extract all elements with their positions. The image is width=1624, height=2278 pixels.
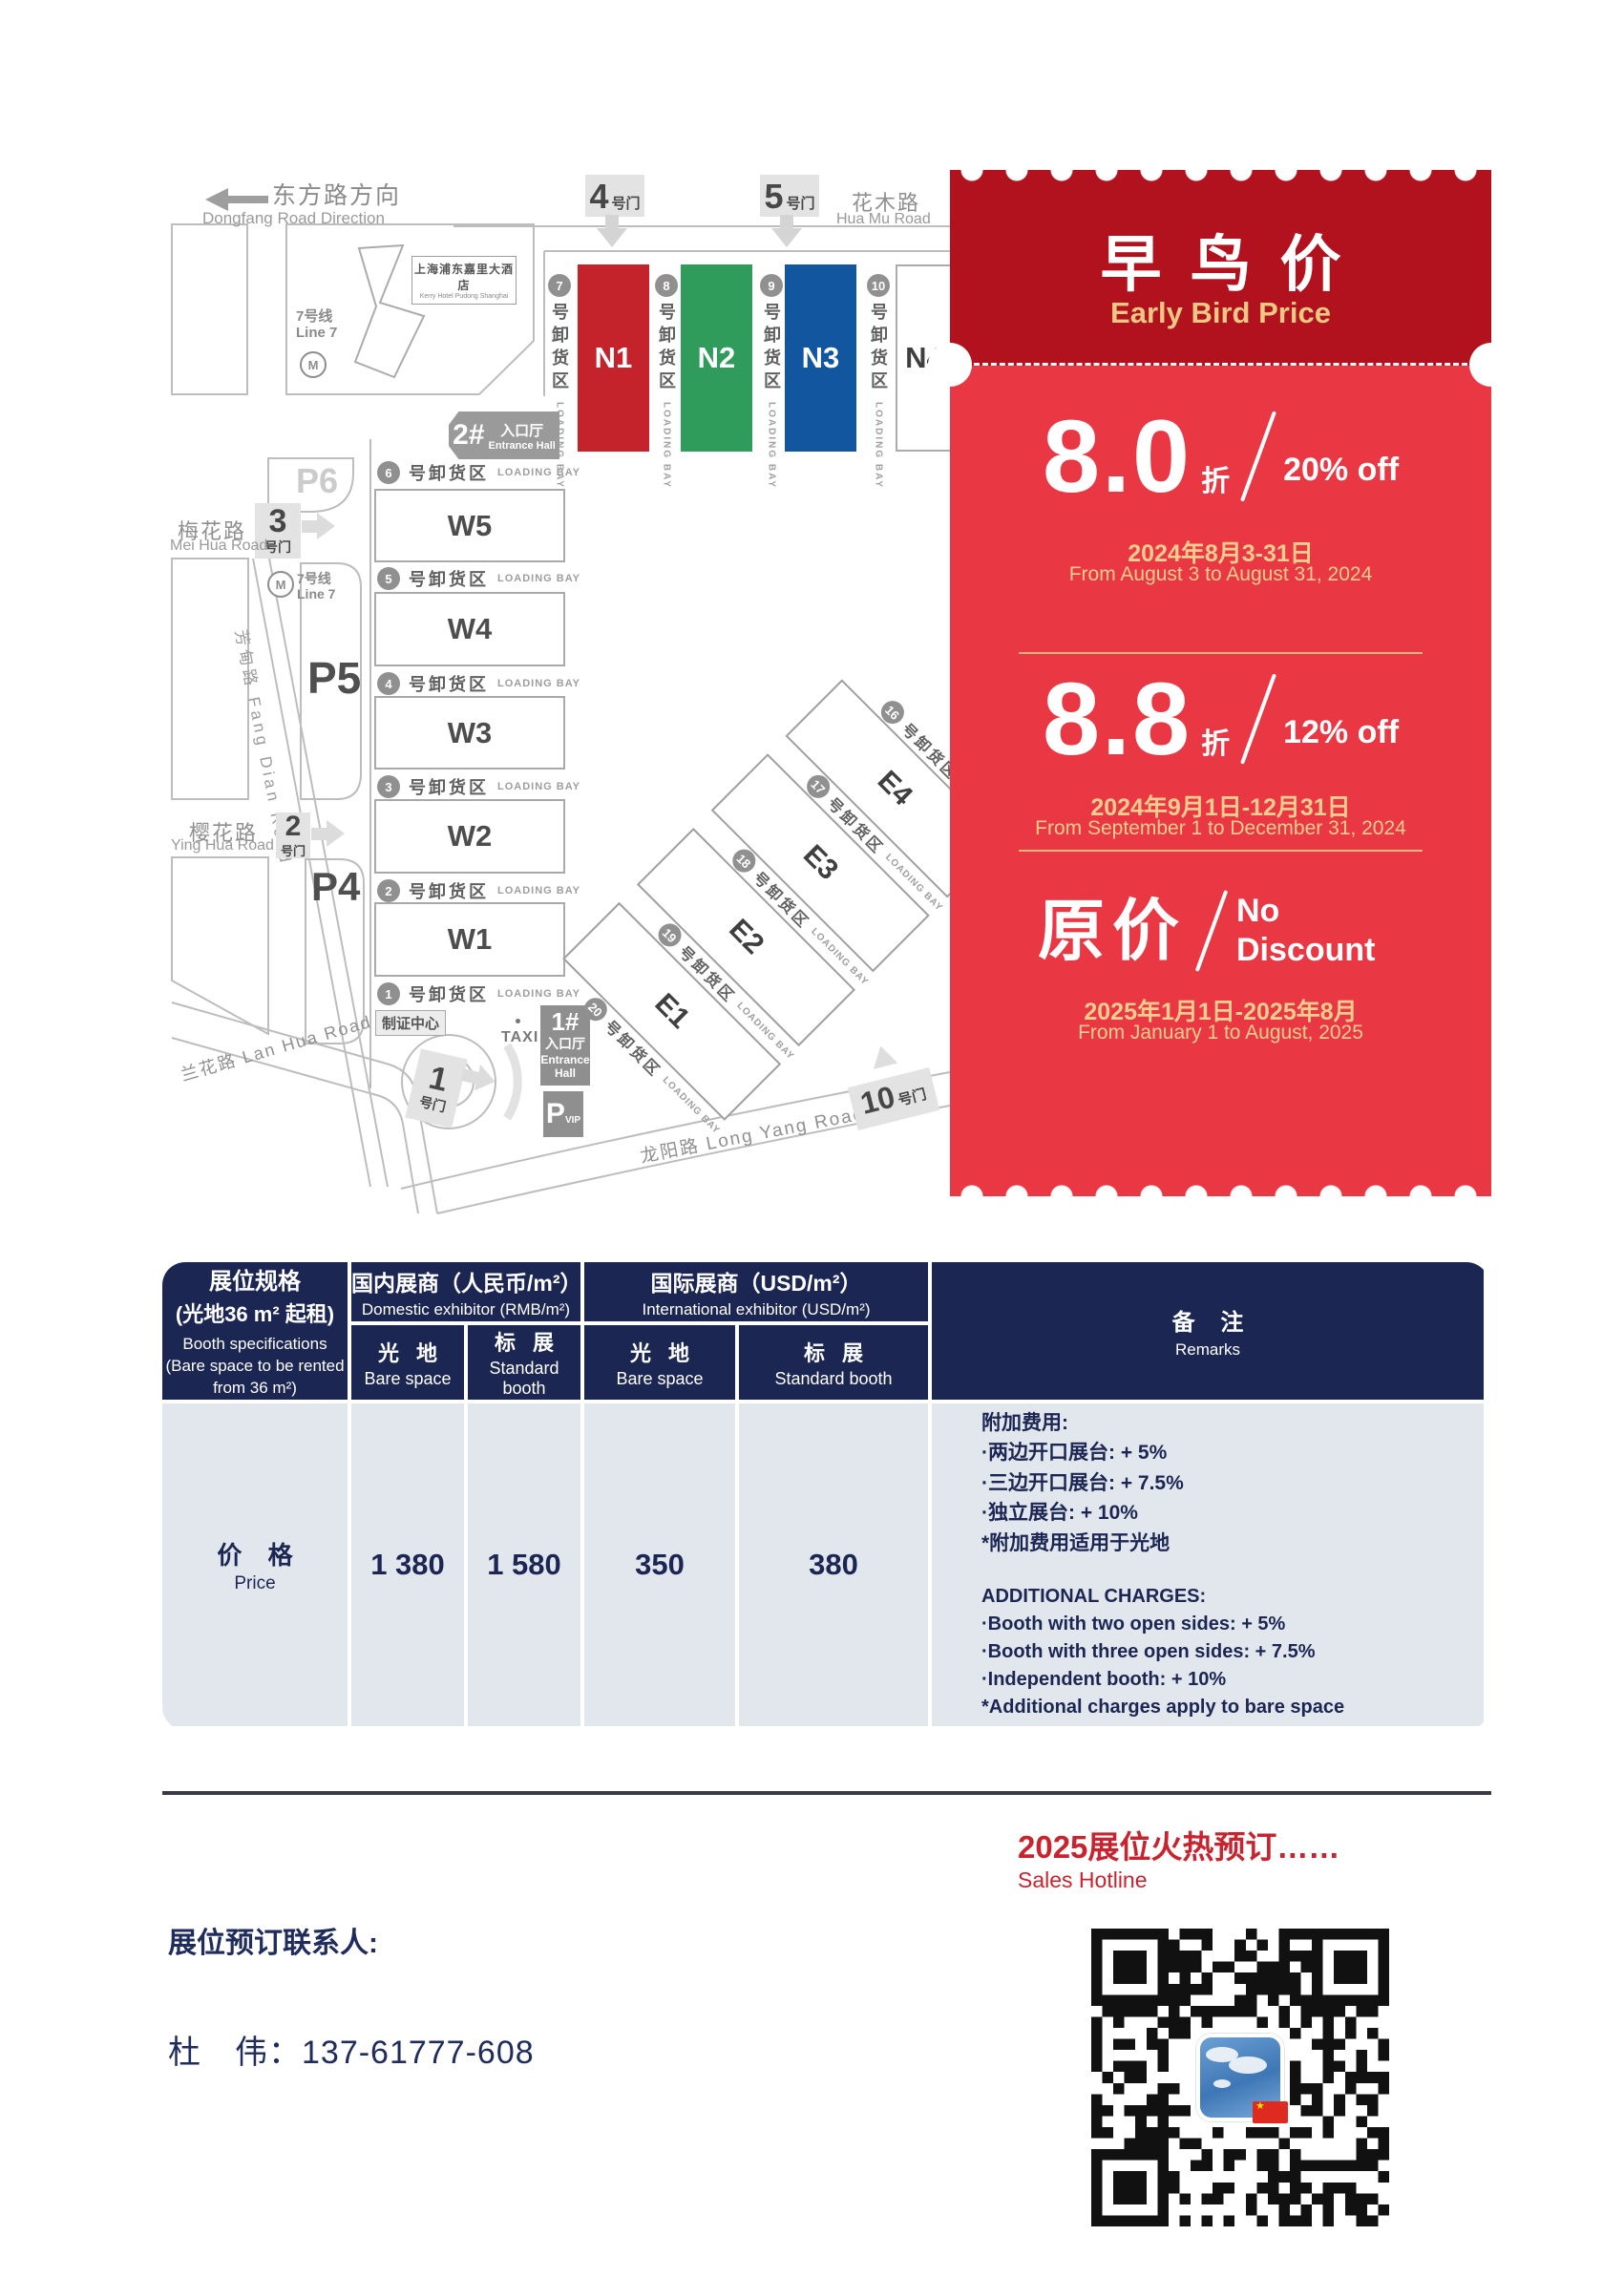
coupon-notch-right	[1469, 343, 1513, 387]
loading-bay-2: 2号卸货区LOADING BAY	[377, 878, 580, 903]
gate-5-arrow-icon	[771, 215, 802, 247]
footer-divider	[162, 1791, 1491, 1795]
metro-line7-label-1: 7号线 Line 7	[296, 308, 337, 342]
price-domestic-bare: 1 380	[351, 1403, 464, 1726]
china-flag-icon: ★	[1253, 2101, 1288, 2123]
parking-p6: P6	[296, 461, 338, 501]
hall-n3: N3	[785, 264, 856, 452]
price-intl-bare: 350	[584, 1403, 735, 1726]
coupon-divider-1	[1019, 652, 1423, 654]
hall-w3: W3	[374, 696, 565, 770]
hall-n1: N1	[578, 264, 649, 452]
slash-icon	[1240, 411, 1276, 501]
price-table: 展位规格 (光地36 m² 起租) Booth specifications (…	[162, 1262, 1489, 1730]
contact-phone: 杜 伟：137-61777-608	[168, 2026, 535, 2073]
sales-hotline-cn: 2025展位火热预订……	[1018, 1822, 1339, 1867]
col-header-domestic: 国内展商（人民币/m²） Domestic exhibitor (RMB/m²)	[351, 1262, 580, 1321]
loading-bay-1: 1号卸货区LOADING BAY	[377, 981, 580, 1006]
gate-4: 4号门	[585, 175, 644, 217]
qr-code: ★	[1091, 1929, 1389, 2226]
contact-label: 展位预订联系人:	[168, 1919, 378, 1961]
slash-icon	[1195, 890, 1229, 972]
hall-n2: N2	[681, 264, 752, 452]
metro-line7-label-2: 7号线Line 7	[297, 571, 335, 601]
parking-p4: P4	[311, 864, 360, 910]
loading-bay-5: 5号卸货区LOADING BAY	[377, 566, 580, 591]
entrance-hall-2: 2# 入口厅 Entrance Hall	[449, 411, 559, 459]
coupon-scallop-bottom	[950, 1182, 1491, 1196]
loading-bay-9: 9 号卸货区 LOADING BAY	[759, 274, 784, 489]
early-bird-coupon: 早鸟价 Early Bird Price 8.0 折 20% off 2024年…	[950, 170, 1491, 1196]
kerry-hotel-label: 上海浦东嘉里大酒店 Kerry Hotel Pudong Shanghai	[411, 256, 517, 305]
coupon-dashed-divider	[965, 363, 1476, 366]
taxi-label: TAXI	[501, 1029, 538, 1046]
parking-p5: P5	[307, 652, 361, 704]
badge-center-label: 制证中心	[375, 1010, 446, 1036]
meihua-road-en: Mei Hua Road	[170, 538, 267, 555]
col-header-booth-spec: 展位规格 (光地36 m² 起租) Booth specifications (…	[162, 1262, 348, 1400]
huamu-road-en: Hua Mu Road	[836, 211, 931, 228]
coupon-notch-left	[928, 343, 972, 387]
gate-2: 2号门	[276, 812, 310, 858]
tier-2-date-en: From September 1 to December 31, 2024	[950, 817, 1491, 840]
dongfang-road-cn: 东方路方向	[272, 177, 401, 211]
gate-4-arrow-icon	[597, 215, 627, 247]
entrance-hall-1: 1# 入口厅 Entrance Hall	[540, 1005, 590, 1086]
remarks-cell: 附加费用: ·两边开口展台: + 5% ·三边开口展台: + 7.5% ·独立展…	[932, 1403, 1484, 1726]
price-domestic-standard: 1 580	[468, 1403, 580, 1726]
tier-1-price: 8.0 折 20% off	[950, 399, 1491, 514]
dongfang-road-en: Dongfang Road Direction	[202, 209, 385, 228]
col-header-remarks: 备 注 Remarks	[932, 1262, 1484, 1400]
hall-w2: W2	[374, 799, 565, 874]
sub-header-intl-bare: 光 地Bare space	[584, 1325, 735, 1400]
slash-icon	[1240, 673, 1276, 764]
tier-3-date-en: From January 1 to August, 2025	[950, 1022, 1491, 1044]
price-intl-standard: 380	[739, 1403, 928, 1726]
gate-3-arrow-icon	[302, 513, 335, 539]
coupon-scallop-top	[950, 170, 1491, 184]
coupon-title-en: Early Bird Price	[950, 296, 1491, 330]
metro-icon-2: M	[267, 571, 294, 598]
gate-2-arrow-icon	[311, 820, 345, 847]
sub-header-intl-standard: 标 展Standard booth	[739, 1325, 928, 1400]
tier-2-price: 8.8 折 12% off	[950, 662, 1491, 776]
sub-header-domestic-standard: 标 展Standard booth	[468, 1325, 580, 1400]
loading-bay-6: 6号卸货区LOADING BAY	[377, 460, 580, 485]
qr-center-avatar: ★	[1196, 2034, 1284, 2121]
loading-bay-3: 3号卸货区LOADING BAY	[377, 774, 580, 799]
loading-bay-8: 8 号卸货区 LOADING BAY	[654, 274, 679, 489]
loading-bay-10: 10 号卸货区 LOADING BAY	[866, 274, 891, 489]
coupon-divider-2	[1019, 850, 1423, 852]
loading-bay-4: 4号卸货区LOADING BAY	[377, 671, 580, 696]
hall-w5: W5	[374, 489, 565, 562]
dongfang-direction-arrow-icon	[205, 188, 268, 211]
coupon-title-cn: 早鸟价	[950, 216, 1491, 304]
gate-5: 5号门	[760, 175, 819, 217]
col-header-international: 国际展商（USD/m²） International exhibitor (US…	[584, 1262, 928, 1321]
venue-map: 东方路方向 Dongfang Road Direction 4号门 5号门 花木…	[162, 158, 983, 1217]
row-label-price: 价 格 Price	[162, 1403, 348, 1726]
sales-hotline-en: Sales Hotline	[1018, 1867, 1148, 1893]
tier-3-price: 原价 No Discount	[950, 878, 1491, 983]
sub-header-domestic-bare: 光 地Bare space	[351, 1325, 464, 1400]
vip-parking: PVIP	[543, 1091, 583, 1137]
hall-w1: W1	[374, 902, 565, 977]
yinghua-road-en: Ying Hua Road	[171, 837, 274, 854]
hall-w4: W4	[374, 592, 565, 666]
metro-icon-1: M	[300, 351, 327, 378]
tier-1-date-en: From August 3 to August 31, 2024	[950, 563, 1491, 586]
taxi-dot-icon	[516, 1019, 520, 1023]
